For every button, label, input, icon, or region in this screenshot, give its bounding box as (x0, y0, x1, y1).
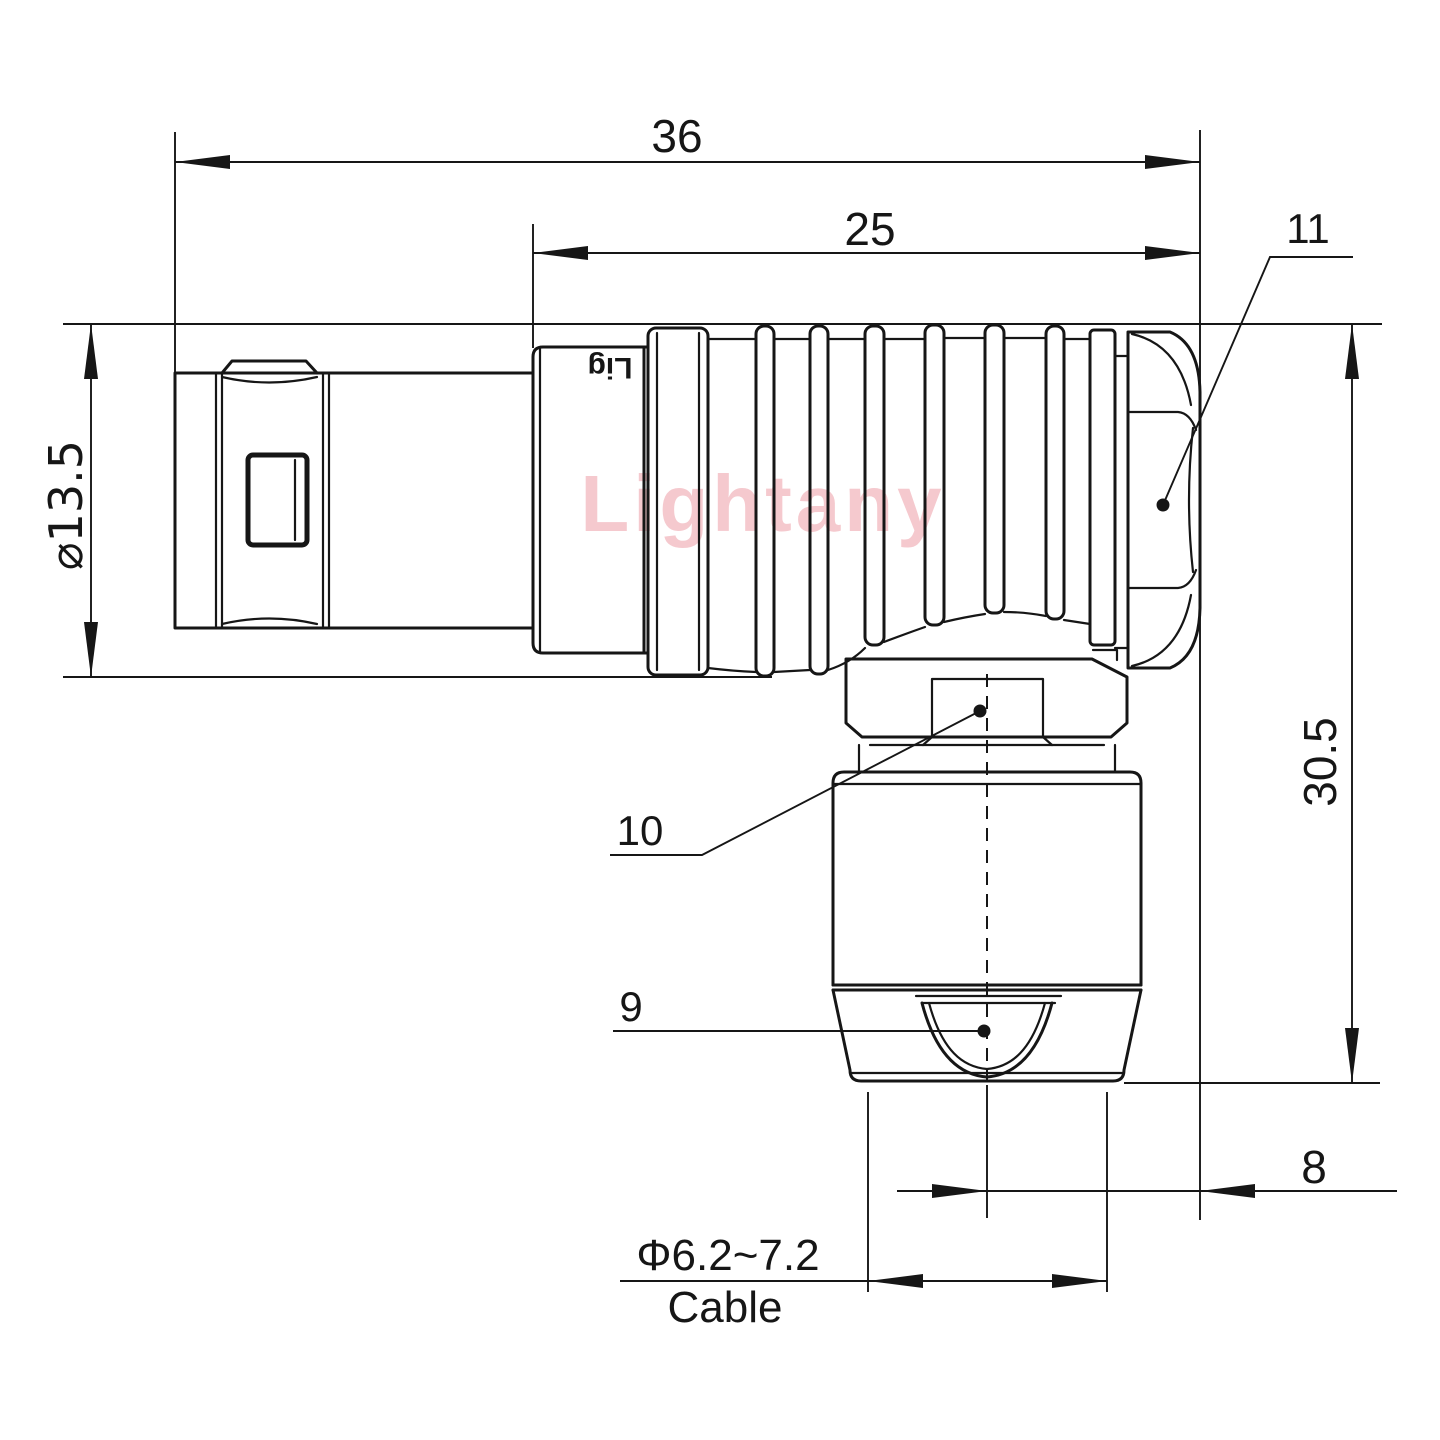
leader-dot-9 (978, 1025, 991, 1038)
dim-text-8: 8 (1301, 1141, 1327, 1193)
reference-lines (63, 130, 1382, 1292)
arrow-left-icon (175, 155, 230, 169)
boot-bottom-surface-lines (708, 612, 1090, 672)
drawing-page: Lightany 36 25 ⌀13.5 30.5 (0, 0, 1440, 1440)
dim-text-25: 25 (844, 203, 895, 255)
cable-cutout-top (916, 996, 1061, 1003)
latch-window (248, 455, 307, 545)
leader-line-11 (1163, 257, 1353, 505)
label-clamp-flange: 10 (610, 705, 987, 856)
barrel-waist-arc (222, 619, 317, 625)
boot-top-surface-lines (708, 338, 1090, 339)
cable-word-text: Cable (668, 1283, 783, 1332)
cable-gland (833, 674, 1141, 1081)
dimension-total-height: 30.5 (1294, 324, 1359, 1083)
latch-bump (222, 361, 317, 373)
arrow-down-icon (1345, 1028, 1359, 1083)
arrow-left-icon (1200, 1184, 1255, 1198)
neck-to-nut (1115, 356, 1128, 648)
arrow-right-icon (1145, 246, 1200, 260)
dimension-rear-offset: 8 (897, 1141, 1397, 1198)
boot-end-step (1093, 650, 1117, 660)
rib (985, 325, 1004, 613)
dimension-total-length: 36 (175, 110, 1200, 169)
dimension-cable: Φ6.2~7.2 Cable (620, 1231, 1107, 1332)
dim-text-36: 36 (651, 110, 702, 162)
rib (1046, 326, 1064, 619)
part-text-10: 10 (617, 807, 664, 854)
sleeve-engraving-text: Lig (588, 351, 633, 384)
dim-text-30-5: 30.5 (1294, 717, 1346, 807)
technical-drawing: Lightany 36 25 ⌀13.5 30.5 (0, 0, 1440, 1440)
arrow-left-icon (533, 246, 588, 260)
arrow-up-icon (84, 324, 98, 379)
cable-diameter-text: Φ6.2~7.2 (636, 1231, 819, 1280)
arrow-right-icon (1052, 1274, 1107, 1288)
leader-dot-11 (1157, 499, 1170, 512)
plug-barrel (175, 361, 533, 628)
arrow-left-icon (868, 1274, 923, 1288)
flange-middle-face (923, 679, 1052, 745)
arrow-down-icon (84, 622, 98, 677)
watermark-text: Lightany (580, 459, 945, 548)
leader-dot-10 (974, 705, 987, 718)
arrow-right-icon (1145, 155, 1200, 169)
dimension-front-diameter: ⌀13.5 (39, 324, 98, 677)
label-back-nut: 11 (1157, 205, 1354, 512)
dimension-rear-length: 25 (533, 203, 1200, 260)
latch-bump-arc (222, 377, 317, 383)
dim-text-13-5: ⌀13.5 (39, 440, 93, 570)
boot-end-cap (1090, 330, 1115, 645)
arrow-right-icon (932, 1184, 987, 1198)
barrel-body (175, 373, 533, 628)
part-text-11: 11 (1286, 205, 1330, 252)
part-text-9: 9 (619, 983, 642, 1030)
arrow-up-icon (1345, 324, 1359, 379)
